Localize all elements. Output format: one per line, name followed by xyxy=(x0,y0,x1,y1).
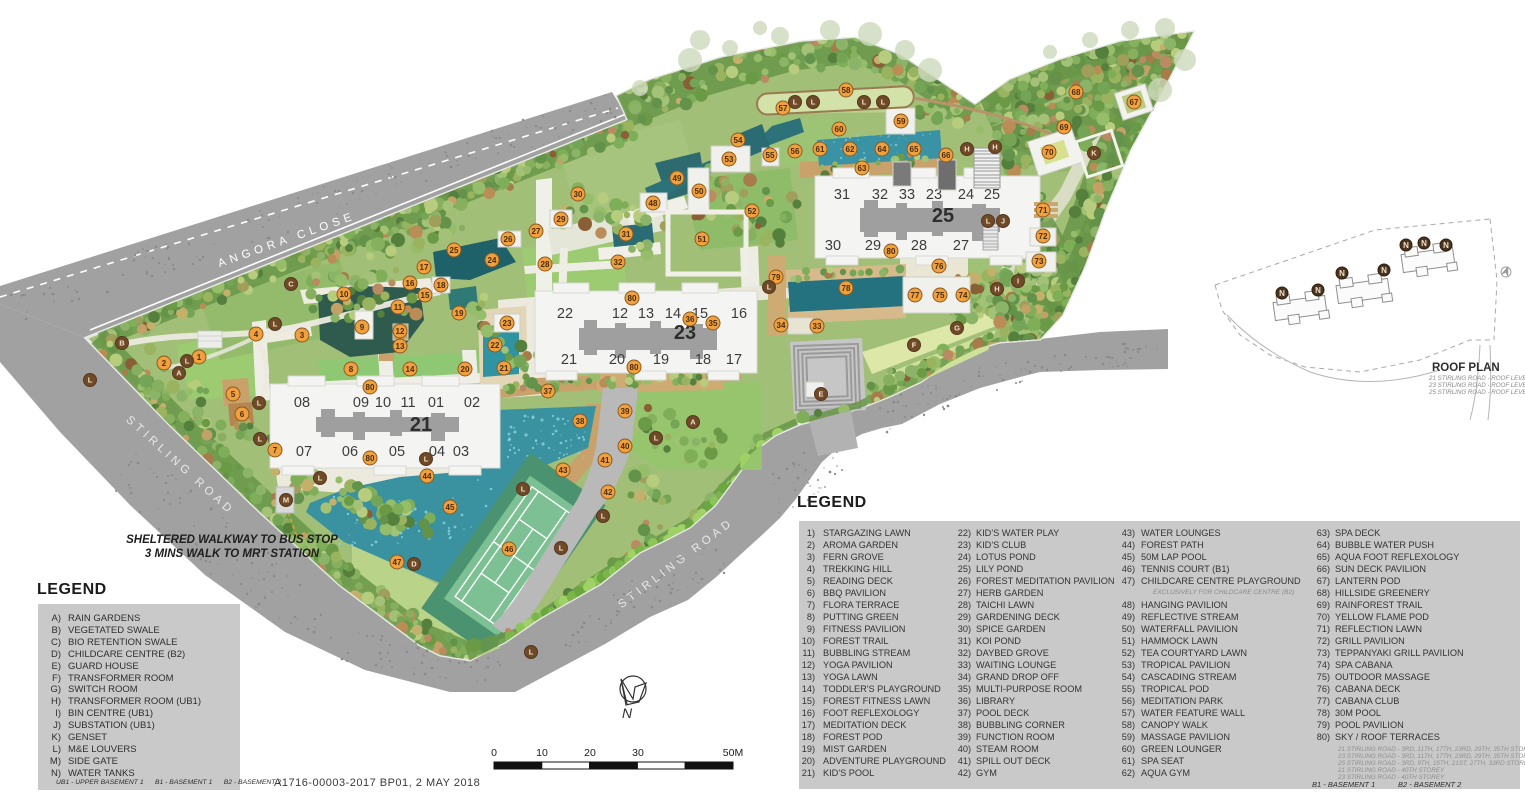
svg-text:16: 16 xyxy=(731,306,747,322)
svg-text:N: N xyxy=(1381,266,1387,275)
svg-text:21: 21 xyxy=(410,414,432,436)
svg-text:06: 06 xyxy=(342,444,358,460)
svg-text:30: 30 xyxy=(825,238,841,254)
svg-text:SHELTERED WALKWAY TO BUS STOP: SHELTERED WALKWAY TO BUS STOP xyxy=(126,534,338,546)
svg-text:7: 7 xyxy=(273,446,278,455)
svg-text:65: 65 xyxy=(910,145,919,154)
svg-text:45: 45 xyxy=(446,503,455,512)
svg-text:49: 49 xyxy=(673,174,682,183)
svg-text:N: N xyxy=(1339,269,1345,278)
svg-text:38: 38 xyxy=(576,417,585,426)
svg-text:35: 35 xyxy=(709,319,718,328)
svg-text:54: 54 xyxy=(734,136,743,145)
svg-text:L: L xyxy=(258,435,263,444)
svg-text:72: 72 xyxy=(1039,232,1048,241)
svg-text:71: 71 xyxy=(1039,206,1048,215)
svg-text:42: 42 xyxy=(604,488,613,497)
svg-text:29: 29 xyxy=(557,215,566,224)
svg-text:25: 25 xyxy=(932,205,954,227)
svg-text:L: L xyxy=(318,474,323,483)
svg-text:43: 43 xyxy=(559,466,568,475)
svg-text:24: 24 xyxy=(958,187,974,203)
svg-text:50: 50 xyxy=(695,187,704,196)
svg-text:08: 08 xyxy=(294,395,310,411)
svg-text:68: 68 xyxy=(1072,88,1081,97)
svg-text:60: 60 xyxy=(835,125,844,134)
svg-text:N: N xyxy=(622,705,633,721)
svg-text:05: 05 xyxy=(389,444,405,460)
svg-text:C: C xyxy=(288,280,294,289)
svg-text:10: 10 xyxy=(536,747,548,759)
svg-text:L: L xyxy=(811,98,816,107)
svg-text:17: 17 xyxy=(420,263,429,272)
svg-text:46: 46 xyxy=(505,545,514,554)
svg-text:32: 32 xyxy=(872,187,888,203)
svg-text:27: 27 xyxy=(953,238,969,254)
svg-text:80: 80 xyxy=(366,454,375,463)
svg-text:L: L xyxy=(529,648,534,657)
svg-text:0: 0 xyxy=(491,747,497,759)
svg-text:F: F xyxy=(912,341,917,350)
svg-text:28: 28 xyxy=(911,238,927,254)
svg-text:12: 12 xyxy=(396,327,405,336)
svg-text:20: 20 xyxy=(609,352,625,368)
svg-text:L: L xyxy=(273,320,278,329)
svg-text:H: H xyxy=(992,143,997,152)
svg-text:L: L xyxy=(862,98,867,107)
svg-text:58: 58 xyxy=(842,86,851,95)
svg-text:10: 10 xyxy=(340,290,349,299)
svg-text:22: 22 xyxy=(491,341,500,350)
svg-text:33: 33 xyxy=(899,187,915,203)
svg-text:19: 19 xyxy=(653,352,669,368)
svg-text:07: 07 xyxy=(296,444,312,460)
svg-text:21 STIRLING ROAD - ROOF LEVEL: 21 STIRLING ROAD - ROOF LEVEL xyxy=(1428,375,1525,382)
svg-text:L: L xyxy=(986,217,991,226)
svg-text:32: 32 xyxy=(614,258,623,267)
svg-text:3: 3 xyxy=(300,331,305,340)
svg-text:76: 76 xyxy=(935,262,944,271)
svg-text:E: E xyxy=(818,390,823,399)
svg-text:14: 14 xyxy=(665,306,681,322)
svg-text:2: 2 xyxy=(162,359,167,368)
svg-text:67: 67 xyxy=(1130,98,1139,107)
svg-text:11: 11 xyxy=(400,395,415,411)
svg-text:13: 13 xyxy=(638,306,654,322)
svg-text:L: L xyxy=(601,512,606,521)
svg-text:02: 02 xyxy=(464,395,480,411)
svg-text:G: G xyxy=(954,324,960,333)
svg-text:78: 78 xyxy=(842,284,851,293)
svg-text:31: 31 xyxy=(834,187,850,203)
svg-text:18: 18 xyxy=(437,281,446,290)
svg-text:24: 24 xyxy=(488,256,497,265)
svg-text:N: N xyxy=(1403,241,1409,250)
svg-text:L: L xyxy=(654,434,659,443)
svg-text:50M: 50M xyxy=(723,747,743,759)
svg-text:L: L xyxy=(559,544,564,553)
svg-text:I: I xyxy=(1017,277,1019,286)
svg-text:74: 74 xyxy=(959,291,968,300)
svg-text:16: 16 xyxy=(406,279,415,288)
svg-text:A1716-00003-2017 BP01, 2 MAY 2: A1716-00003-2017 BP01, 2 MAY 2018 xyxy=(274,777,480,789)
svg-text:21: 21 xyxy=(561,352,577,368)
svg-text:M: M xyxy=(283,496,289,505)
svg-text:80: 80 xyxy=(628,294,637,303)
svg-text:59: 59 xyxy=(897,117,906,126)
svg-text:79: 79 xyxy=(772,273,781,282)
svg-text:13: 13 xyxy=(396,342,405,351)
svg-text:10: 10 xyxy=(375,395,391,411)
svg-text:A: A xyxy=(690,418,696,427)
svg-text:39: 39 xyxy=(621,407,630,416)
svg-text:23 STIRLING ROAD - ROOF LEVEL: 23 STIRLING ROAD - ROOF LEVEL xyxy=(1428,382,1525,389)
svg-text:75: 75 xyxy=(936,291,945,300)
svg-text:47: 47 xyxy=(393,558,402,567)
svg-text:3 MINS WALK TO MRT STATION: 3 MINS WALK TO MRT STATION xyxy=(145,548,320,560)
svg-text:D: D xyxy=(411,560,417,569)
svg-text:51: 51 xyxy=(698,235,707,244)
svg-text:21: 21 xyxy=(500,364,509,373)
svg-text:L: L xyxy=(881,98,886,107)
svg-text:01: 01 xyxy=(428,395,444,411)
svg-text:30: 30 xyxy=(574,190,583,199)
svg-text:19: 19 xyxy=(455,309,464,318)
svg-text:26: 26 xyxy=(504,235,513,244)
svg-text:N: N xyxy=(1421,239,1427,248)
svg-text:63: 63 xyxy=(858,164,867,173)
svg-text:55: 55 xyxy=(766,151,775,160)
svg-text:31: 31 xyxy=(622,230,631,239)
svg-text:22: 22 xyxy=(557,306,573,322)
svg-text:L: L xyxy=(424,455,429,464)
svg-text:36: 36 xyxy=(686,315,695,324)
svg-text:69: 69 xyxy=(1060,123,1069,132)
svg-text:64: 64 xyxy=(878,145,887,154)
svg-text:K: K xyxy=(1091,149,1097,158)
svg-text:80: 80 xyxy=(887,247,896,256)
svg-text:H: H xyxy=(994,285,999,294)
svg-text:L: L xyxy=(767,283,772,292)
svg-text:L: L xyxy=(257,399,262,408)
svg-text:62: 62 xyxy=(846,145,855,154)
svg-text:77: 77 xyxy=(911,291,920,300)
svg-text:52: 52 xyxy=(748,207,757,216)
svg-text:9: 9 xyxy=(360,323,365,332)
svg-text:14: 14 xyxy=(406,365,415,374)
svg-text:L: L xyxy=(793,98,798,107)
svg-text:A: A xyxy=(176,369,182,378)
svg-text:73: 73 xyxy=(1035,257,1044,266)
svg-text:80: 80 xyxy=(630,363,639,372)
svg-text:44: 44 xyxy=(423,472,432,481)
svg-text:1: 1 xyxy=(197,353,202,362)
svg-text:03: 03 xyxy=(453,444,469,460)
svg-text:25: 25 xyxy=(984,187,1000,203)
svg-text:ROOF PLAN: ROOF PLAN xyxy=(1432,362,1500,374)
svg-text:11: 11 xyxy=(394,303,403,312)
svg-text:57: 57 xyxy=(779,104,788,113)
svg-text:J: J xyxy=(1001,217,1005,226)
svg-text:N: N xyxy=(1315,286,1321,295)
svg-text:37: 37 xyxy=(544,387,553,396)
svg-text:70: 70 xyxy=(1045,148,1054,157)
svg-text:09: 09 xyxy=(353,395,369,411)
svg-text:66: 66 xyxy=(942,151,951,160)
svg-text:28: 28 xyxy=(541,260,550,269)
svg-text:H: H xyxy=(964,145,969,154)
svg-text:20: 20 xyxy=(461,365,470,374)
svg-text:48: 48 xyxy=(649,199,658,208)
svg-text:30: 30 xyxy=(632,747,644,759)
svg-text:N: N xyxy=(1279,289,1285,298)
svg-text:25 STIRLING ROAD - ROOF LEVEL: 25 STIRLING ROAD - ROOF LEVEL xyxy=(1428,389,1525,396)
svg-text:8: 8 xyxy=(349,365,354,374)
svg-text:20: 20 xyxy=(584,747,596,759)
svg-text:80: 80 xyxy=(366,383,375,392)
svg-text:34: 34 xyxy=(777,321,786,330)
svg-text:L: L xyxy=(185,357,190,366)
svg-text:6: 6 xyxy=(240,410,245,419)
svg-text:B: B xyxy=(119,339,125,348)
svg-text:5: 5 xyxy=(231,390,236,399)
svg-text:61: 61 xyxy=(816,145,825,154)
svg-text:29: 29 xyxy=(865,238,881,254)
svg-text:15: 15 xyxy=(421,291,430,300)
svg-text:27: 27 xyxy=(532,227,541,236)
svg-text:23: 23 xyxy=(503,319,512,328)
svg-text:L: L xyxy=(521,485,526,494)
svg-text:N: N xyxy=(1443,241,1449,250)
svg-text:4: 4 xyxy=(254,330,259,339)
svg-text:25: 25 xyxy=(450,246,459,255)
svg-text:L: L xyxy=(88,376,93,385)
svg-text:56: 56 xyxy=(791,147,800,156)
svg-text:17: 17 xyxy=(726,352,742,368)
svg-text:53: 53 xyxy=(725,155,734,164)
svg-text:41: 41 xyxy=(601,456,610,465)
svg-text:12: 12 xyxy=(612,306,628,322)
svg-text:40: 40 xyxy=(621,442,630,451)
svg-text:18: 18 xyxy=(695,352,711,368)
svg-text:33: 33 xyxy=(813,322,822,331)
